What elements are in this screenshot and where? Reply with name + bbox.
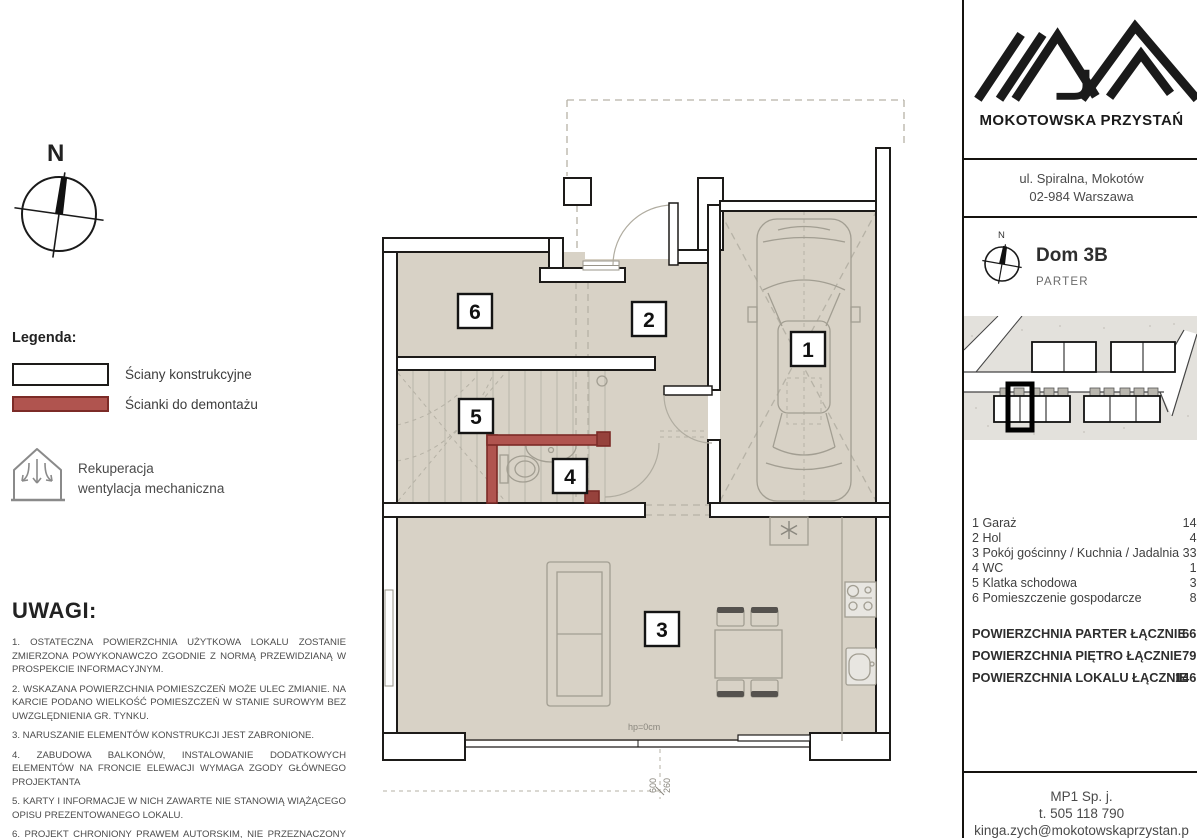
floor-plan: 600 260 hp=0cm 1 2 3 4 5 6 — [380, 93, 910, 799]
note-item: 4. ZABUDOWA BALKONÓW, INSTALOWANIE DODAT… — [12, 749, 346, 790]
note-item: 5. KARTY I INFORMACJE W NICH ZAWARTE NIE… — [12, 795, 346, 822]
svg-text:260: 260 — [662, 778, 672, 793]
window-height-label: hp=0cm — [628, 722, 660, 732]
recuperation-icon — [10, 445, 68, 507]
note-item: 1. OSTATECZNA POWIERZCHNIA UŻYTKOWA LOKA… — [12, 636, 346, 677]
brand-logo-icon — [972, 10, 1197, 104]
garage-door-leaf — [664, 386, 712, 395]
note-item: 6. PROJEKT CHRONIONY PRAWEM AUTORSKIM, N… — [12, 828, 346, 838]
company-name: MP1 Sp. j. — [964, 788, 1197, 805]
room-label-3: 3 — [645, 612, 679, 646]
room-label-2: 2 — [632, 302, 666, 336]
total-row: POWIERZCHNIA PARTER ŁĄCZNIE66,5 — [972, 626, 1197, 641]
site-plan — [964, 316, 1197, 440]
legend-label: Ściany konstrukcyjne — [125, 367, 252, 382]
svg-text:1: 1 — [802, 339, 814, 362]
room-list-item: 3 Pokój gościnny / Kuchnia / Jadalnia33,… — [972, 546, 1197, 562]
floorplan-sheet: N Legenda: Ściany konstrukcyjne Ścianki … — [0, 0, 1197, 838]
unit-title: Dom 3B — [1036, 245, 1108, 267]
mini-compass-icon: N — [974, 226, 1032, 288]
contact-block: MP1 Sp. j. t. 505 118 790 kinga.zych@mok… — [964, 788, 1197, 838]
brand-name: MOKOTOWSKA PRZYSTAŃ — [964, 112, 1197, 129]
legend-item-demolition: Ścianki do demontażu — [12, 396, 258, 412]
room-list-item: 4 WC1,7 — [972, 561, 1197, 577]
total-row: POWIERZCHNIA LOKALU ŁĄCZNIE146,3 — [972, 670, 1197, 685]
compass-icon — [10, 168, 114, 264]
svg-text:N: N — [998, 230, 1005, 241]
north-label: N — [47, 140, 64, 168]
room-label-1: 1 — [791, 332, 825, 366]
room-list-item: 2 Hol4,3 — [972, 531, 1197, 547]
wall-swatch-icon — [12, 363, 109, 386]
info-panel: MOKOTOWSKA PRZYSTAŃ ul. Spiralna, Mokotó… — [962, 0, 1197, 838]
divider — [964, 216, 1197, 218]
address: ul. Spiralna, Mokotów 02-984 Warszawa — [964, 170, 1197, 206]
svg-text:6: 6 — [469, 301, 481, 324]
kitchen-sink-icon — [846, 648, 876, 685]
room-list-item: 6 Pomieszczenie gospodarcze8,5 — [972, 591, 1197, 607]
total-row: POWIERZCHNIA PIĘTRO ŁĄCZNIE79,7 — [972, 648, 1197, 663]
demolition-swatch-icon — [12, 396, 109, 412]
svg-text:5: 5 — [470, 406, 482, 429]
note-item: 2. WSKAZANA POWIERZCHNIA POMIESZCZEŃ MOŻ… — [12, 683, 346, 724]
legend-item-walls: Ściany konstrukcyjne — [12, 363, 252, 386]
legend-heading: Legenda: — [12, 330, 76, 346]
stove-icon — [845, 582, 876, 617]
room-list-item: 5 Klatka schodowa3,9 — [972, 576, 1197, 592]
note-item: 3. NARUSZANIE ELEMENTÓW KONSTRUKCJI JEST… — [12, 729, 346, 743]
recuperation-label: Rekuperacja wentylacja mechaniczna — [78, 459, 224, 499]
unit-floor: PARTER — [1036, 276, 1089, 288]
phone-number: t. 505 118 790 — [964, 805, 1197, 822]
divider — [964, 158, 1197, 160]
notes-heading: UWAGI: — [12, 598, 97, 624]
room-label-4: 4 — [553, 459, 587, 493]
notes-list: 1. OSTATECZNA POWIERZCHNIA UŻYTKOWA LOKA… — [12, 636, 346, 838]
svg-text:4: 4 — [564, 466, 576, 489]
svg-text:3: 3 — [656, 619, 668, 642]
room-label-6: 6 — [458, 294, 492, 328]
svg-text:600: 600 — [648, 778, 658, 793]
legend-label: Ścianki do demontażu — [125, 397, 258, 412]
email-address: kinga.zych@mokotowskaprzystan.p — [964, 822, 1197, 838]
room-list-item: 1 Garaż14,8 — [972, 516, 1197, 532]
room-label-5: 5 — [459, 399, 493, 433]
svg-text:2: 2 — [643, 309, 655, 332]
divider — [964, 771, 1197, 773]
entry-door-leaf — [669, 203, 678, 265]
